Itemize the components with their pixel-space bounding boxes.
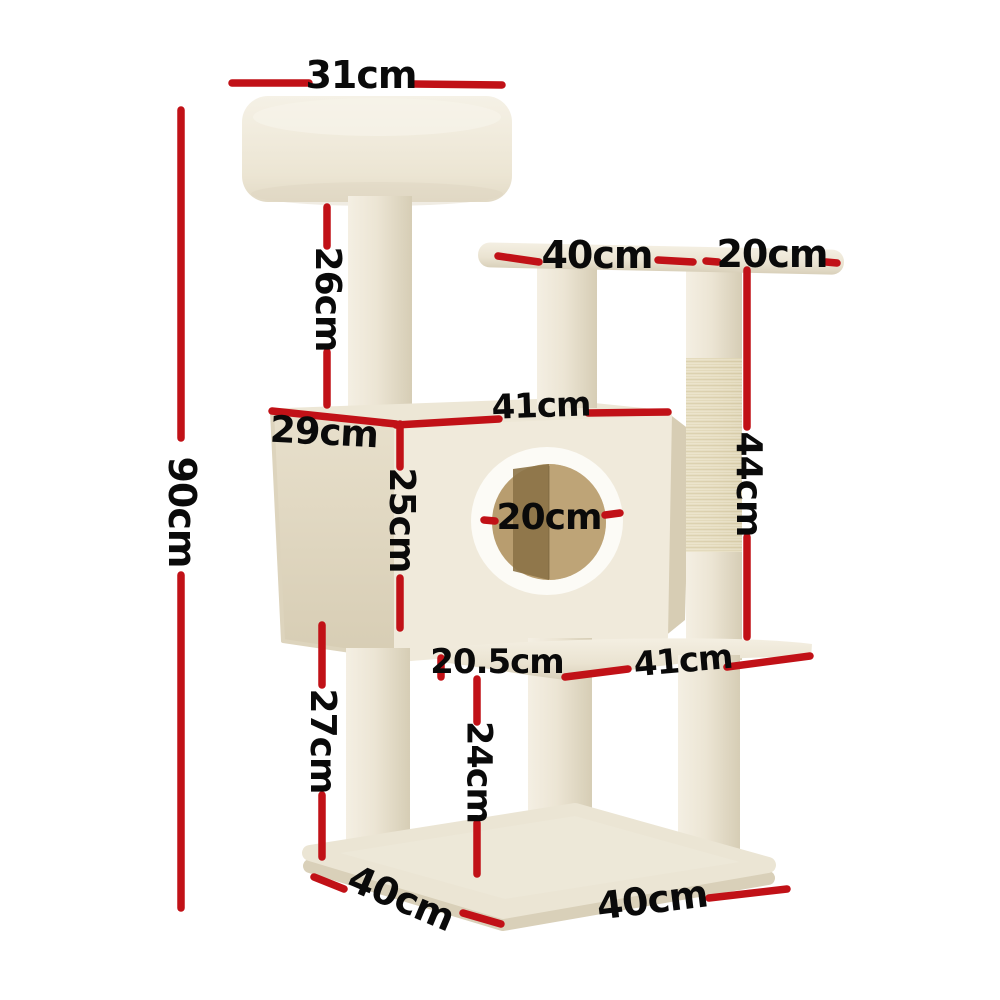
- dim-label-lower-post-height: 27cm: [304, 689, 340, 794]
- dim-label-condo-height: 25cm: [383, 468, 419, 573]
- lower-right-post: [678, 655, 740, 862]
- dim-label-top-platform-width: 31cm: [305, 56, 416, 94]
- dim-label-top-post-height: 26cm: [309, 247, 345, 352]
- line-20cm-mid-right: [826, 262, 837, 263]
- dim-label-mid-platform-length: 40cm: [541, 236, 652, 274]
- dim-label-lower-platform-offset: 20.5cm: [430, 645, 563, 679]
- line-41cm-condo-right: [588, 412, 668, 413]
- dim-label-total-height: 90cm: [163, 456, 201, 567]
- top-post: [348, 196, 412, 418]
- line-20cm-hole-right: [605, 513, 620, 515]
- dim-label-scratch-post-height: 44cm: [730, 432, 766, 537]
- dim-label-lower-platform-length: 41cm: [632, 640, 733, 682]
- dim-label-hole-diameter: 20cm: [497, 500, 602, 536]
- line-40cm-20cm-dash1: [658, 260, 693, 262]
- top-bed: [242, 96, 512, 206]
- dim-label-condo-width: 41cm: [491, 387, 591, 424]
- dim-label-condo-depth: 29cm: [269, 411, 379, 454]
- product-dimension-image: 31cm 26cm 40cm 20cm 90cm 41cm 29cm 25cm …: [0, 0, 1000, 1000]
- line-31cm-right: [413, 84, 502, 85]
- dim-label-mid-platform-overhang: 20cm: [716, 235, 827, 273]
- line-20cm-hole-left: [484, 520, 495, 521]
- dim-label-platform-to-base-height: 24cm: [461, 721, 496, 823]
- lower-left-post: [346, 648, 410, 858]
